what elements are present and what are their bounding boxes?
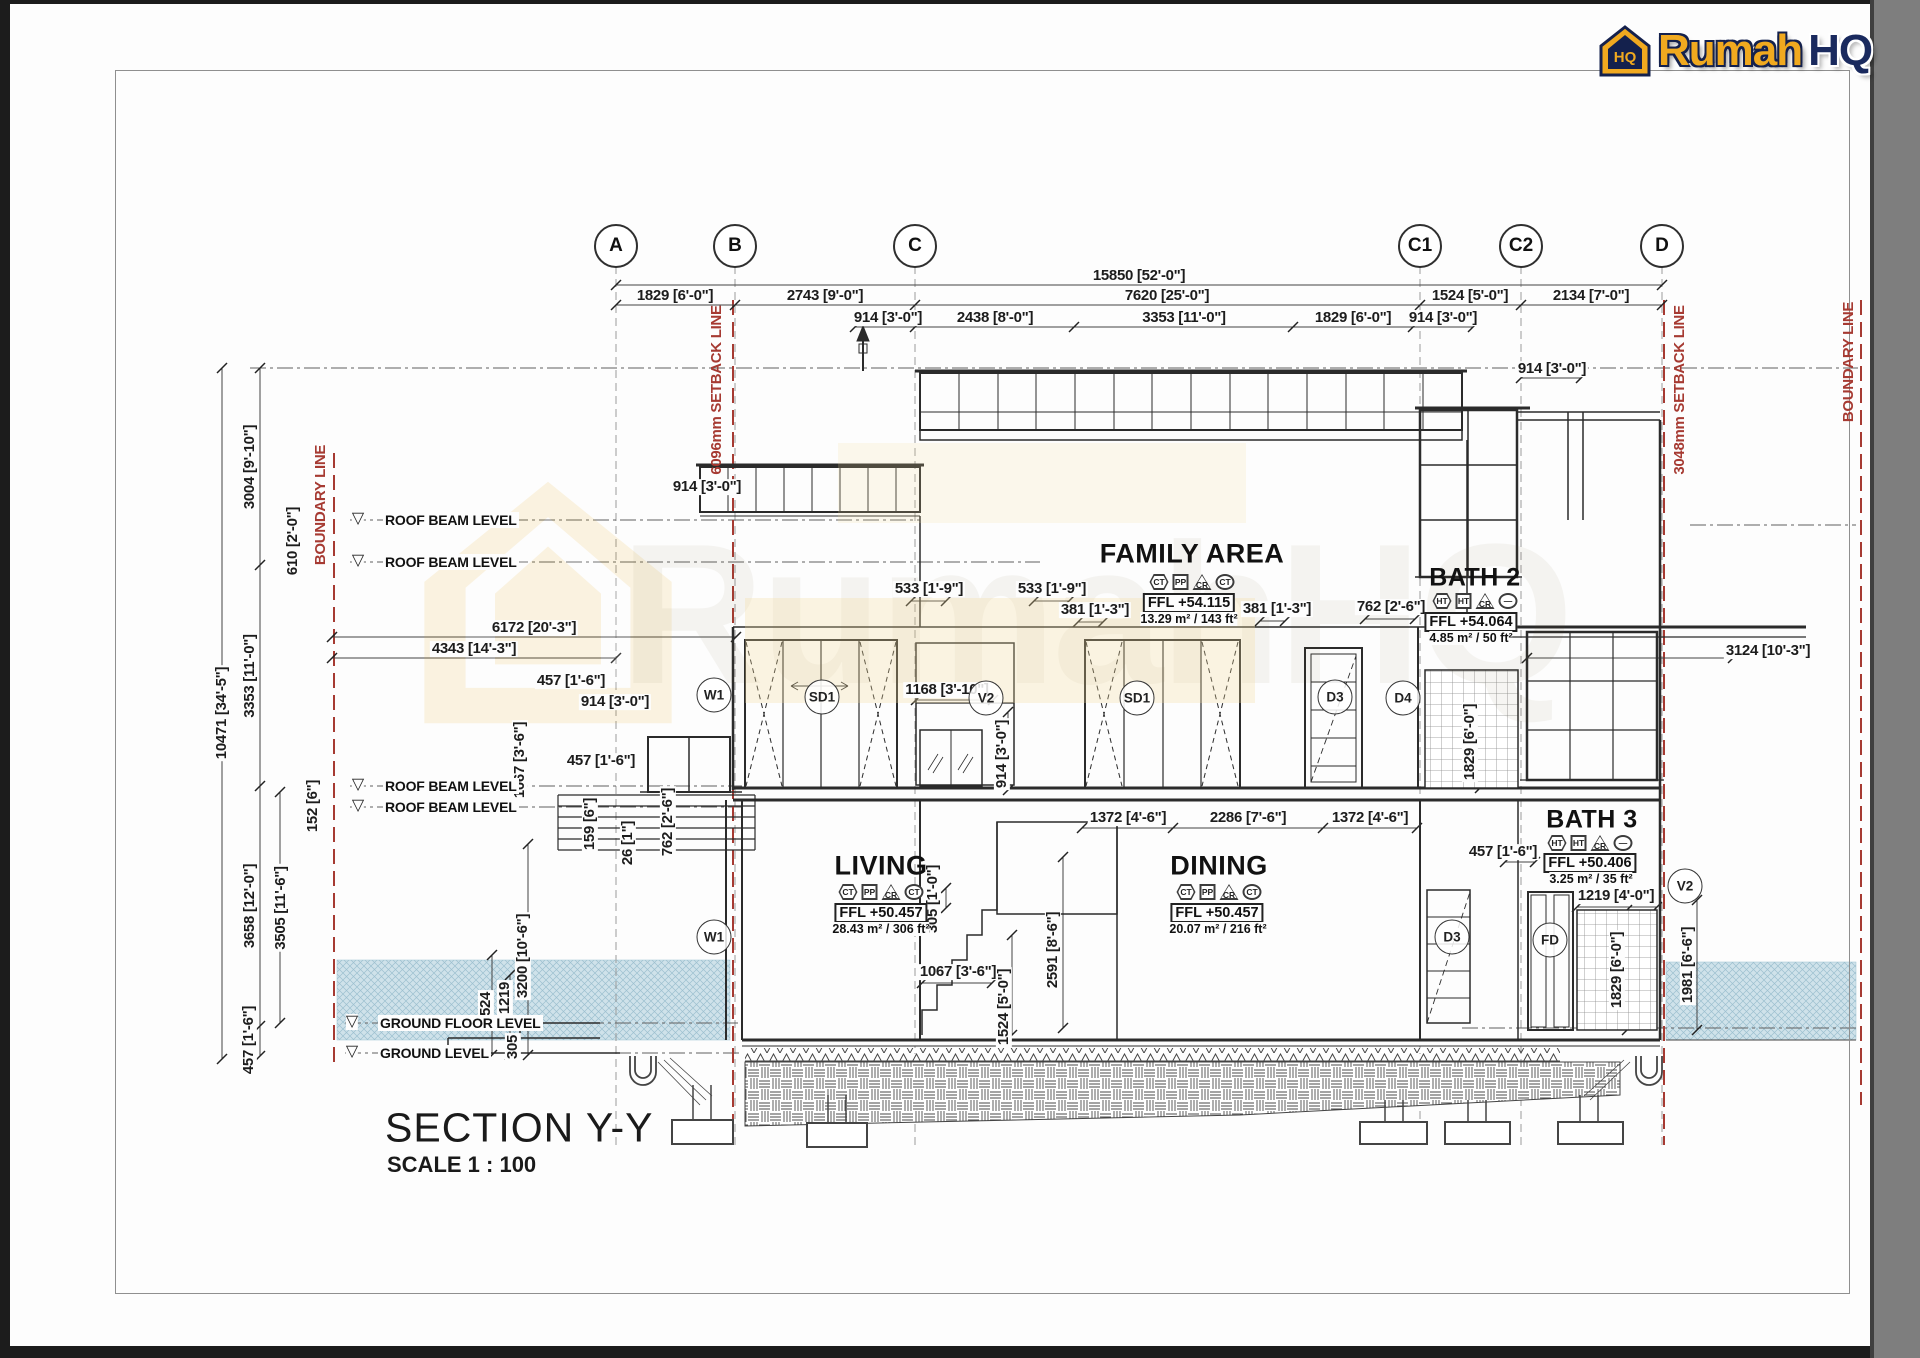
- dim-label: 533 [1'-9"]: [1016, 581, 1088, 597]
- drawing-sheet: RumahHQ HQ Rumah HQ A B C C1 C2 D 15850 …: [0, 0, 1920, 1358]
- tag-v2: V2: [1668, 869, 1703, 904]
- grid-bubble-c2: C2: [1499, 224, 1543, 268]
- tag-v2: V2: [969, 681, 1004, 716]
- dim-label: 152 [6"]: [305, 778, 321, 834]
- circle-tag-icon: CT: [1216, 574, 1235, 590]
- ffl-label-dining: FFL +50.457: [1170, 903, 1263, 923]
- level-label-ground-floor: GROUND FLOOR LEVEL: [378, 1015, 543, 1031]
- tag-label: D3: [1443, 930, 1460, 945]
- dim-label: 1067 [3'-6"]: [918, 964, 998, 980]
- grid-label: C: [908, 235, 922, 257]
- tag-fd: FD: [1533, 923, 1568, 958]
- dim-label: 159 [6"]: [582, 796, 598, 852]
- ffl-label-bath3: FFL +50.406: [1543, 853, 1636, 873]
- room-icons-bath2: HT HT CR —: [1433, 593, 1518, 609]
- dim-label: 914 [3'-0"]: [1516, 361, 1588, 377]
- dim-label: 3004 [9'-10"]: [242, 423, 258, 511]
- tag-label: V2: [978, 691, 995, 706]
- dim-label: 914 [3'-0"]: [1407, 310, 1479, 326]
- circle-tag-icon: —: [1614, 835, 1633, 851]
- square-tag-icon: HT: [1456, 593, 1472, 609]
- triangle-tag-icon: CR: [1476, 593, 1495, 609]
- dim-label: 3124 [10'-3"]: [1724, 643, 1812, 659]
- dim-label: 3505 [11'-6"]: [273, 864, 289, 952]
- level-marker-icon: ▽: [352, 798, 364, 814]
- square-tag-icon: PP: [1200, 884, 1216, 900]
- boundary-line-label: BOUNDARY LINE: [1841, 300, 1857, 424]
- dim-label: 10471 [34'-5"]: [214, 665, 230, 761]
- square-tag-icon: PP: [1173, 574, 1189, 590]
- dim-label: 7620 [25'-0"]: [1123, 288, 1211, 304]
- dim-label: 381 [1'-3"]: [1059, 602, 1131, 618]
- grid-bubble-a: A: [594, 224, 638, 268]
- grid-bubble-c: C: [893, 224, 937, 268]
- dim-label: 1524 [5'-0"]: [1430, 288, 1510, 304]
- hexagon-tag-icon: CT: [1177, 884, 1196, 900]
- tag-label: D3: [1326, 690, 1343, 705]
- square-tag-icon: PP: [862, 884, 878, 900]
- circle-tag-icon: CT: [1243, 884, 1262, 900]
- grid-bubble-c1: C1: [1398, 224, 1442, 268]
- dim-label: 914 [3'-0"]: [579, 694, 651, 710]
- tag-label: V2: [1677, 879, 1694, 894]
- tag-label: SD1: [1124, 691, 1150, 706]
- dim-label: 533 [1'-9"]: [893, 581, 965, 597]
- dim-label: 2134 [7'-0"]: [1551, 288, 1631, 304]
- square-tag-icon: HT: [1571, 835, 1587, 851]
- dim-label: 3200 [10'-6"]: [515, 912, 531, 1000]
- dim-label: 26 [1"]: [620, 819, 636, 867]
- drawing-scale: SCALE 1 : 100: [387, 1152, 536, 1178]
- grid-label: D: [1655, 235, 1669, 257]
- tag-w1: W1: [697, 678, 732, 713]
- dim-label: 762 [2'-6"]: [1355, 599, 1427, 615]
- dim-label: 762 [2'-6"]: [660, 786, 676, 858]
- tag-w1: W1: [697, 920, 732, 955]
- dim-label: 610 [2'-0"]: [285, 505, 301, 577]
- room-label-living: LIVING: [834, 851, 927, 882]
- dim-label: 2591 [8'-6"]: [1045, 910, 1061, 990]
- page-edge-left: [0, 0, 10, 1358]
- circle-tag-icon: —: [1499, 593, 1518, 609]
- level-marker-icon: ▽: [352, 511, 364, 527]
- room-label-dining: DINING: [1170, 851, 1268, 882]
- dim-label: 1829 [6'-0"]: [1609, 930, 1625, 1010]
- area-label-bath3: 3.25 m² / 35 ft²: [1549, 872, 1632, 886]
- tag-label: SD1: [809, 690, 835, 705]
- level-label-ground: GROUND LEVEL: [378, 1045, 491, 1061]
- svg-text:HQ: HQ: [1614, 49, 1637, 66]
- boundary-line-label: BOUNDARY LINE: [313, 443, 329, 567]
- level-label-roof-beam: ROOF BEAM LEVEL: [383, 512, 519, 528]
- rumahhq-logo: HQ Rumah HQ: [1598, 24, 1872, 78]
- area-label-family: 13.29 m² / 143 ft²: [1140, 612, 1237, 626]
- dim-label: 457 [1'-6"]: [1467, 844, 1539, 860]
- room-icons-bath3: HT HT CR —: [1548, 835, 1633, 851]
- tag-d3: D3: [1435, 920, 1470, 955]
- page-edge-right: [1874, 0, 1920, 1358]
- grid-bubble-d: D: [1640, 224, 1684, 268]
- room-icons-family: CT PP CR CT: [1150, 574, 1235, 590]
- circle-tag-icon: CT: [905, 884, 924, 900]
- dim-label: 457 [1'-6"]: [535, 673, 607, 689]
- room-label-bath2: BATH 2: [1429, 564, 1520, 593]
- dim-label: 1372 [4'-6"]: [1088, 810, 1168, 826]
- setback-line-label: 3048mm SETBACK LINE: [1672, 303, 1688, 476]
- dim-label: 1981 [6'-6"]: [1680, 925, 1696, 1005]
- hexagon-tag-icon: HT: [1433, 593, 1452, 609]
- area-label-bath2: 4.85 m² / 50 ft²: [1429, 631, 1512, 645]
- grid-label: C1: [1408, 235, 1432, 257]
- level-label-roof-beam: ROOF BEAM LEVEL: [383, 554, 519, 570]
- tag-d4: D4: [1386, 681, 1421, 716]
- tag-label: FD: [1541, 933, 1559, 948]
- tag-label: W1: [704, 688, 724, 703]
- level-marker-icon: ▽: [346, 1014, 358, 1030]
- tag-label: D4: [1394, 691, 1411, 706]
- dim-label: 6172 [20'-3"]: [490, 620, 578, 636]
- drawing-title: SECTION Y-Y: [385, 1105, 653, 1152]
- dim-label: 3353 [11'-0"]: [242, 632, 258, 720]
- dim-label: 3658 [12'-0"]: [242, 862, 258, 950]
- level-label-roof-beam: ROOF BEAM LEVEL: [383, 778, 519, 794]
- setback-line-label: 6096mm SETBACK LINE: [709, 303, 725, 476]
- triangle-tag-icon: CR: [1220, 884, 1239, 900]
- room-label-family: FAMILY AREA: [1100, 539, 1285, 570]
- ffl-label-family: FFL +54.115: [1143, 593, 1235, 613]
- dim-label: 381 [1'-3"]: [1241, 601, 1313, 617]
- tag-label: W1: [704, 930, 724, 945]
- level-label-roof-beam: ROOF BEAM LEVEL: [383, 799, 519, 815]
- area-label-living: 28.43 m² / 306 ft²: [832, 922, 929, 936]
- dim-label: 457 [1'-6"]: [241, 1004, 257, 1076]
- level-marker-icon: ▽: [352, 553, 364, 569]
- room-icons-dining: CT PP CR CT: [1177, 884, 1262, 900]
- dim-label: 2286 [7'-6"]: [1208, 810, 1288, 826]
- dim-label: 457 [1'-6"]: [565, 753, 637, 769]
- hexagon-tag-icon: HT: [1548, 835, 1567, 851]
- dim-label: 1372 [4'-6"]: [1330, 810, 1410, 826]
- dim-label: 2438 [8'-0"]: [955, 310, 1035, 326]
- triangle-tag-icon: CR: [882, 884, 901, 900]
- tag-sd1: SD1: [805, 680, 840, 715]
- dim-label: 914 [3'-0"]: [852, 310, 924, 326]
- grid-label: A: [609, 235, 623, 257]
- page-edge-bottom: [0, 1346, 1920, 1358]
- dim-label: 1829 [6'-0"]: [635, 288, 715, 304]
- dim-label: 1829 [6'-0"]: [1462, 702, 1478, 782]
- tag-sd1: SD1: [1120, 681, 1155, 716]
- dim-label: 15850 [52'-0"]: [1091, 268, 1187, 284]
- level-marker-icon: ▽: [346, 1044, 358, 1060]
- grid-label: B: [728, 235, 742, 257]
- dim-label: 2743 [9'-0"]: [785, 288, 865, 304]
- hexagon-tag-icon: CT: [1150, 574, 1169, 590]
- tag-d3: D3: [1318, 680, 1353, 715]
- dim-label: 1219: [497, 980, 513, 1016]
- page-edge-top: [0, 0, 1920, 4]
- area-label-dining: 20.07 m² / 216 ft²: [1169, 922, 1266, 936]
- logo-brand: Rumah: [1658, 26, 1802, 76]
- ffl-label-living: FFL +50.457: [834, 903, 927, 923]
- grid-label: C2: [1509, 235, 1533, 257]
- grid-bubble-b: B: [713, 224, 757, 268]
- ffl-label-bath2: FFL +54.064: [1424, 612, 1517, 632]
- logo-suffix: HQ: [1808, 26, 1872, 76]
- triangle-tag-icon: CR: [1591, 835, 1610, 851]
- room-label-bath3: BATH 3: [1546, 806, 1637, 835]
- room-icons-living: CT PP CR CT: [839, 884, 924, 900]
- hexagon-tag-icon: CT: [839, 884, 858, 900]
- dim-label: 1829 [6'-0"]: [1313, 310, 1393, 326]
- level-marker-icon: ▽: [352, 777, 364, 793]
- dim-label: 1219 [4'-0"]: [1576, 888, 1656, 904]
- dim-label: 914 [3'-0"]: [994, 718, 1010, 790]
- triangle-tag-icon: CR: [1193, 574, 1212, 590]
- dim-label: 4343 [14'-3"]: [430, 641, 518, 657]
- logo-house-icon: HQ: [1598, 24, 1652, 78]
- dim-label: 3353 [11'-0"]: [1140, 310, 1228, 326]
- dim-label: 914 [3'-0"]: [671, 479, 743, 495]
- dim-label: 1524 [5'-0"]: [996, 967, 1012, 1047]
- dim-label: 305: [505, 1033, 521, 1061]
